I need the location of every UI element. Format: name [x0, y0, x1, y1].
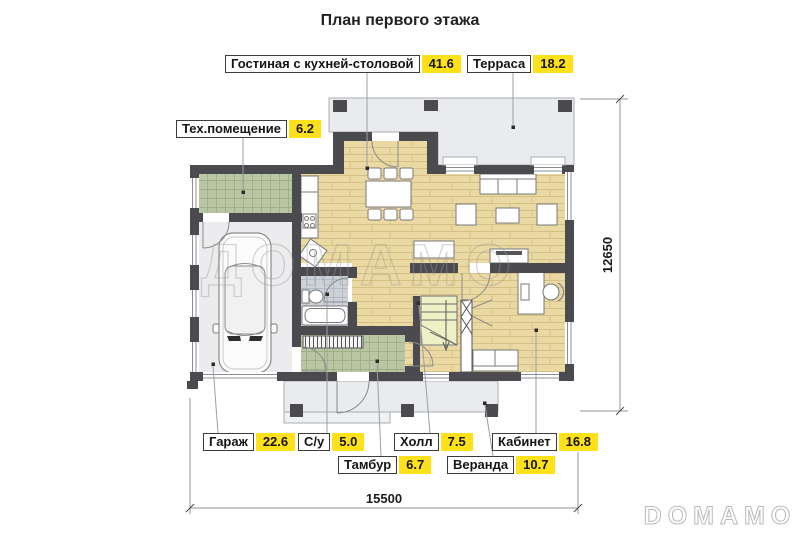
room-label-tech-room: Тех.помещение 6.2 [176, 120, 321, 138]
watermark-center: ДОМАМО [201, 233, 519, 298]
room-label-text: С/у [298, 433, 330, 451]
room-label-tambour: Тамбур 6.7 [338, 456, 431, 474]
sofa [480, 174, 536, 194]
terrace-post [424, 100, 438, 111]
room-label-text: Терраса [467, 55, 531, 73]
terrace-post [333, 100, 347, 112]
room-label-hall: Холл 7.5 [394, 433, 473, 451]
bathtub [302, 306, 348, 325]
car-mirror [213, 324, 219, 333]
room-label-text: Гостиная с кухней-столовой [225, 55, 420, 73]
room-area-value: 41.6 [422, 55, 461, 73]
floor-plan-drawing: 12650 15500 ДОМАМО DOMAMO [0, 0, 800, 534]
watermark-corner: DOMAMO [644, 502, 797, 530]
room-area-value: 6.2 [289, 120, 321, 138]
room-label-cabinet: Кабинет 16.8 [492, 433, 598, 451]
car-mirror [271, 324, 277, 333]
desk [518, 272, 544, 314]
room-area-value: 18.2 [533, 55, 572, 73]
room-label-text: Кабинет [492, 433, 557, 451]
room-label-text: Холл [394, 433, 439, 451]
armchair [537, 204, 557, 225]
porch-post [290, 404, 303, 417]
porch-post [401, 404, 414, 417]
tech-room-floor [199, 174, 292, 213]
room-area-value: 16.8 [559, 433, 598, 451]
room-label-text: Гараж [203, 433, 254, 451]
room-area-value: 6.7 [399, 456, 431, 474]
room-label-bathroom: С/у 5.0 [298, 433, 364, 451]
room-area-value: 22.6 [256, 433, 295, 451]
room-area-value: 7.5 [441, 433, 473, 451]
dimension-width: 15500 [366, 491, 402, 506]
floor-plan-page: 12650 15500 ДОМАМО DOMAMO План первого э… [0, 0, 800, 534]
porch-veranda-area [284, 381, 498, 423]
kitchen-counter [301, 176, 318, 238]
front-door-opening [337, 372, 369, 381]
dimension-depth: 12650 [600, 237, 615, 273]
terrace-post [558, 100, 572, 112]
wardrobe [303, 336, 363, 348]
room-label-veranda: Веранда 10.7 [447, 456, 555, 474]
room-label-garage: Гараж 22.6 [203, 433, 295, 451]
room-label-text: Тамбур [338, 456, 397, 474]
room-area-value: 5.0 [332, 433, 364, 451]
room-label-text: Тех.помещение [176, 120, 287, 138]
coffee-table [496, 208, 519, 223]
dining-table-set [366, 168, 413, 220]
page-title: План первого этажа [0, 12, 800, 30]
room-label-terrace: Терраса 18.2 [467, 55, 573, 73]
room-area-value: 10.7 [516, 456, 555, 474]
armchair [456, 204, 476, 225]
room-label-living-kitchen: Гостиная с кухней-столовой 41.6 [225, 55, 461, 73]
room-label-text: Веранда [447, 456, 514, 474]
cabinet-sofa [473, 350, 518, 371]
